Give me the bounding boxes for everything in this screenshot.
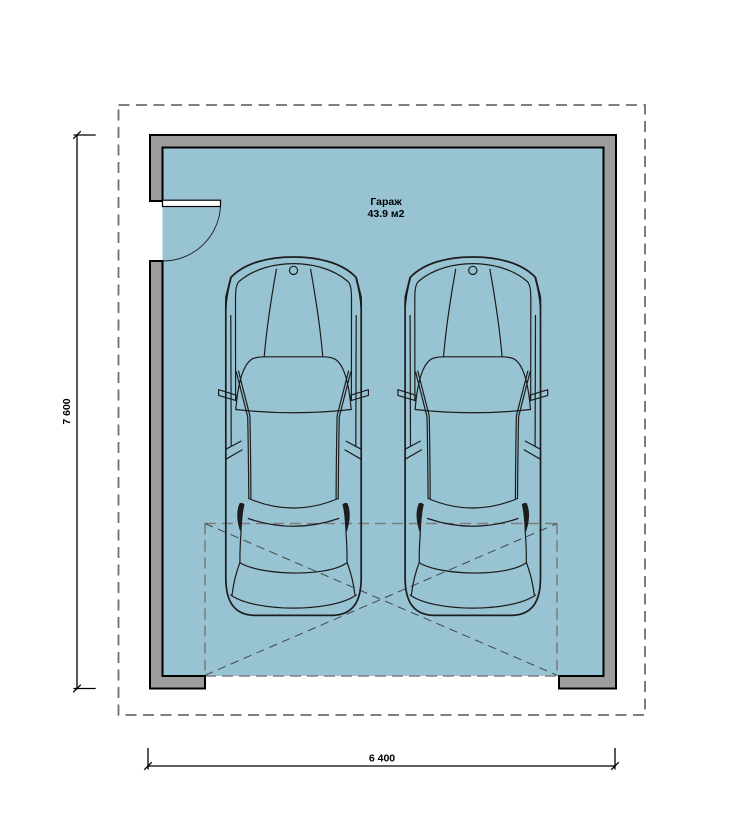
svg-text:7 600: 7 600 [61,398,73,424]
svg-text:6 400: 6 400 [369,753,395,765]
svg-text:Гараж: Гараж [370,196,402,208]
svg-text:43.9 м2: 43.9 м2 [368,208,405,220]
